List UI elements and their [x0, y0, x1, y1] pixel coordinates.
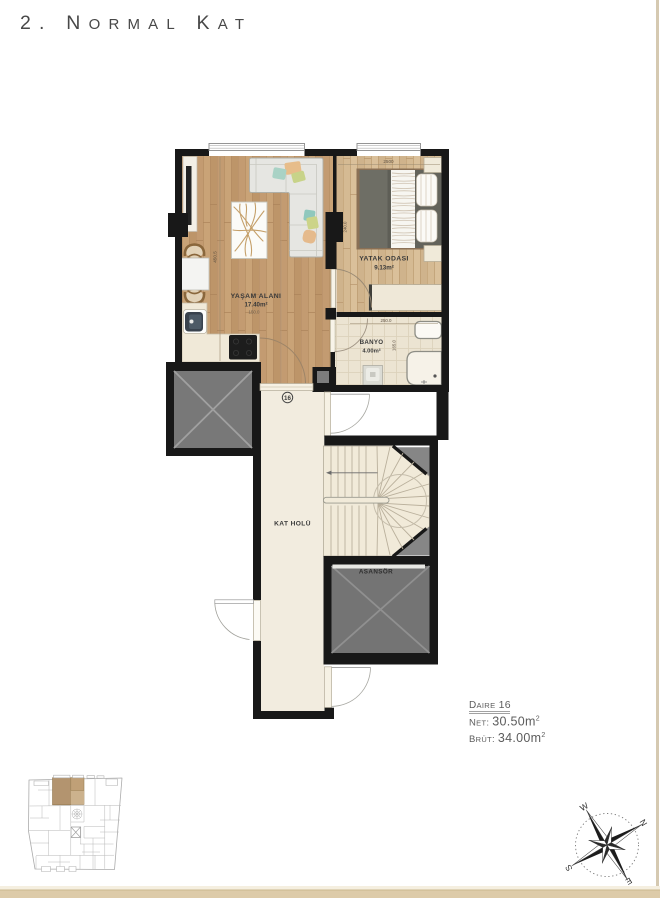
- svg-text:KAT HOLÜ: KAT HOLÜ: [274, 519, 311, 528]
- svg-text:250.0: 250.0: [381, 318, 393, 323]
- svg-text:17.40m²: 17.40m²: [244, 302, 267, 309]
- svg-text:ASANSÖR: ASANSÖR: [359, 567, 393, 576]
- svg-text:4.00m²: 4.00m²: [362, 348, 380, 355]
- svg-text:150.0: 150.0: [249, 310, 261, 315]
- svg-text:DAIRE 16: DAIRE 16: [469, 699, 511, 711]
- svg-text:9.13m²: 9.13m²: [374, 265, 394, 272]
- svg-text:BANYO: BANYO: [360, 339, 384, 346]
- svg-text:2500: 2500: [383, 159, 394, 164]
- svg-text:165.0: 165.0: [392, 339, 397, 351]
- svg-text:450.5: 450.5: [213, 251, 218, 263]
- svg-text:2. NORMAL KAT: 2. NORMAL KAT: [20, 12, 252, 34]
- svg-text:YAŞAM ALANI: YAŞAM ALANI: [231, 293, 282, 300]
- svg-text:YATAK ODASI: YATAK ODASI: [359, 256, 409, 263]
- svg-text:240.0: 240.0: [343, 221, 348, 233]
- svg-text:16: 16: [284, 395, 291, 402]
